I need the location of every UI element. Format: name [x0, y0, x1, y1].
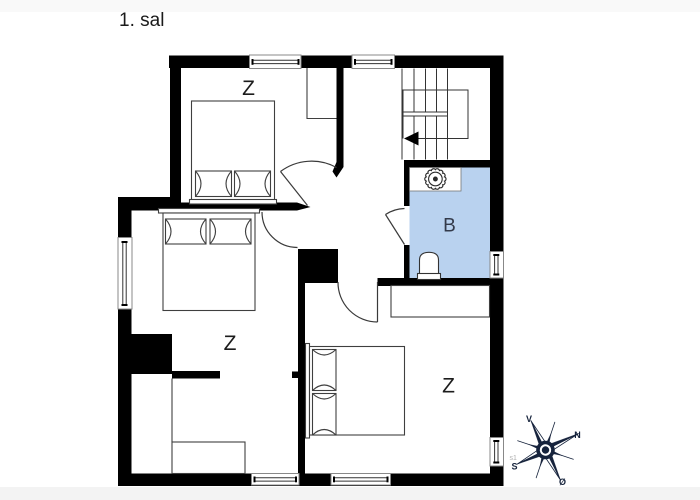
- svg-text:Z: Z: [224, 332, 237, 355]
- svg-text:1. sal: 1. sal: [119, 10, 164, 31]
- svg-text:Z: Z: [442, 375, 455, 398]
- svg-text:Ø: Ø: [559, 477, 566, 487]
- svg-text:V: V: [526, 414, 532, 424]
- svg-text:Z: Z: [242, 77, 255, 100]
- svg-text:N: N: [574, 430, 581, 440]
- svg-text:B: B: [443, 216, 456, 237]
- svg-text:S: S: [511, 462, 517, 472]
